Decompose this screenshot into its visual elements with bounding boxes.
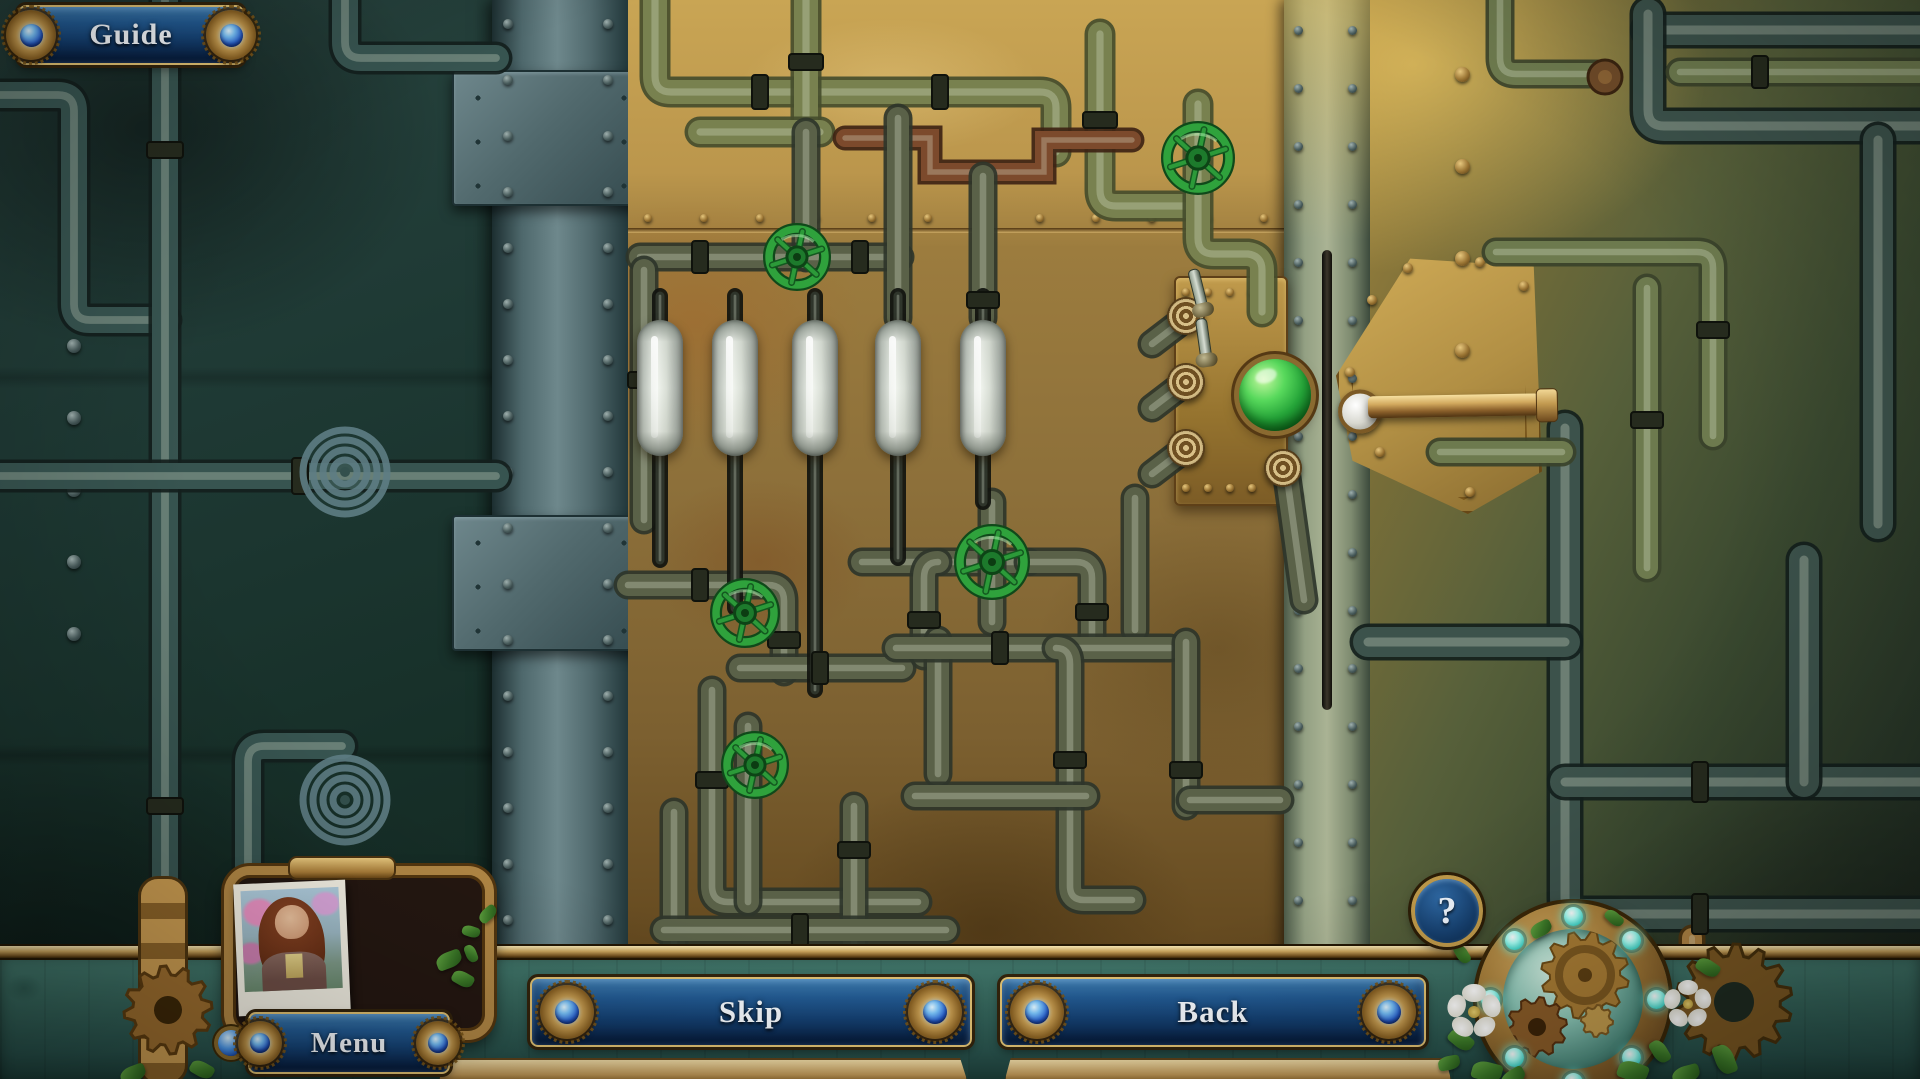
blue-gem-icon: [428, 1033, 448, 1053]
back-button[interactable]: Back: [1000, 977, 1426, 1047]
gem-rosette-icon: [416, 1021, 460, 1065]
objective-photo: [233, 880, 351, 1017]
gem-rosette-icon: [238, 1021, 282, 1065]
guide-label: Guide: [89, 18, 172, 52]
gem-rosette-icon: [6, 10, 56, 60]
device-glass: [1503, 929, 1643, 1069]
back-label: Back: [1177, 994, 1248, 1030]
guide-button[interactable]: Guide: [18, 5, 244, 65]
help-button[interactable]: ?: [1411, 875, 1483, 947]
blue-gem-icon: [220, 24, 243, 47]
blue-gem-icon: [20, 24, 43, 47]
question-mark-icon: ?: [1438, 889, 1457, 933]
device-gears: [1503, 929, 1643, 1069]
blue-gem-icon: [1377, 1000, 1402, 1025]
blue-gem-icon: [555, 1000, 580, 1025]
woman-portrait: [240, 887, 342, 992]
frame-clamp: [288, 856, 396, 880]
gem-rosette-icon: [206, 10, 256, 60]
blue-gem-icon: [923, 1000, 948, 1025]
game-screen: Guide Skip Back Menu ?: [0, 0, 1920, 1079]
skip-label: Skip: [719, 994, 783, 1030]
blue-gem-icon: [250, 1033, 270, 1053]
gem-rosette-icon: [540, 985, 594, 1039]
portrait-jacket: [261, 950, 327, 992]
gem-rosette-icon: [1010, 985, 1064, 1039]
menu-button[interactable]: Menu: [248, 1012, 450, 1074]
gem-rosette-icon: [1362, 985, 1416, 1039]
skip-button[interactable]: Skip: [530, 977, 972, 1047]
gem-rosette-icon: [908, 985, 962, 1039]
blue-gem-icon: [1025, 1000, 1050, 1025]
menu-label: Menu: [311, 1027, 388, 1060]
